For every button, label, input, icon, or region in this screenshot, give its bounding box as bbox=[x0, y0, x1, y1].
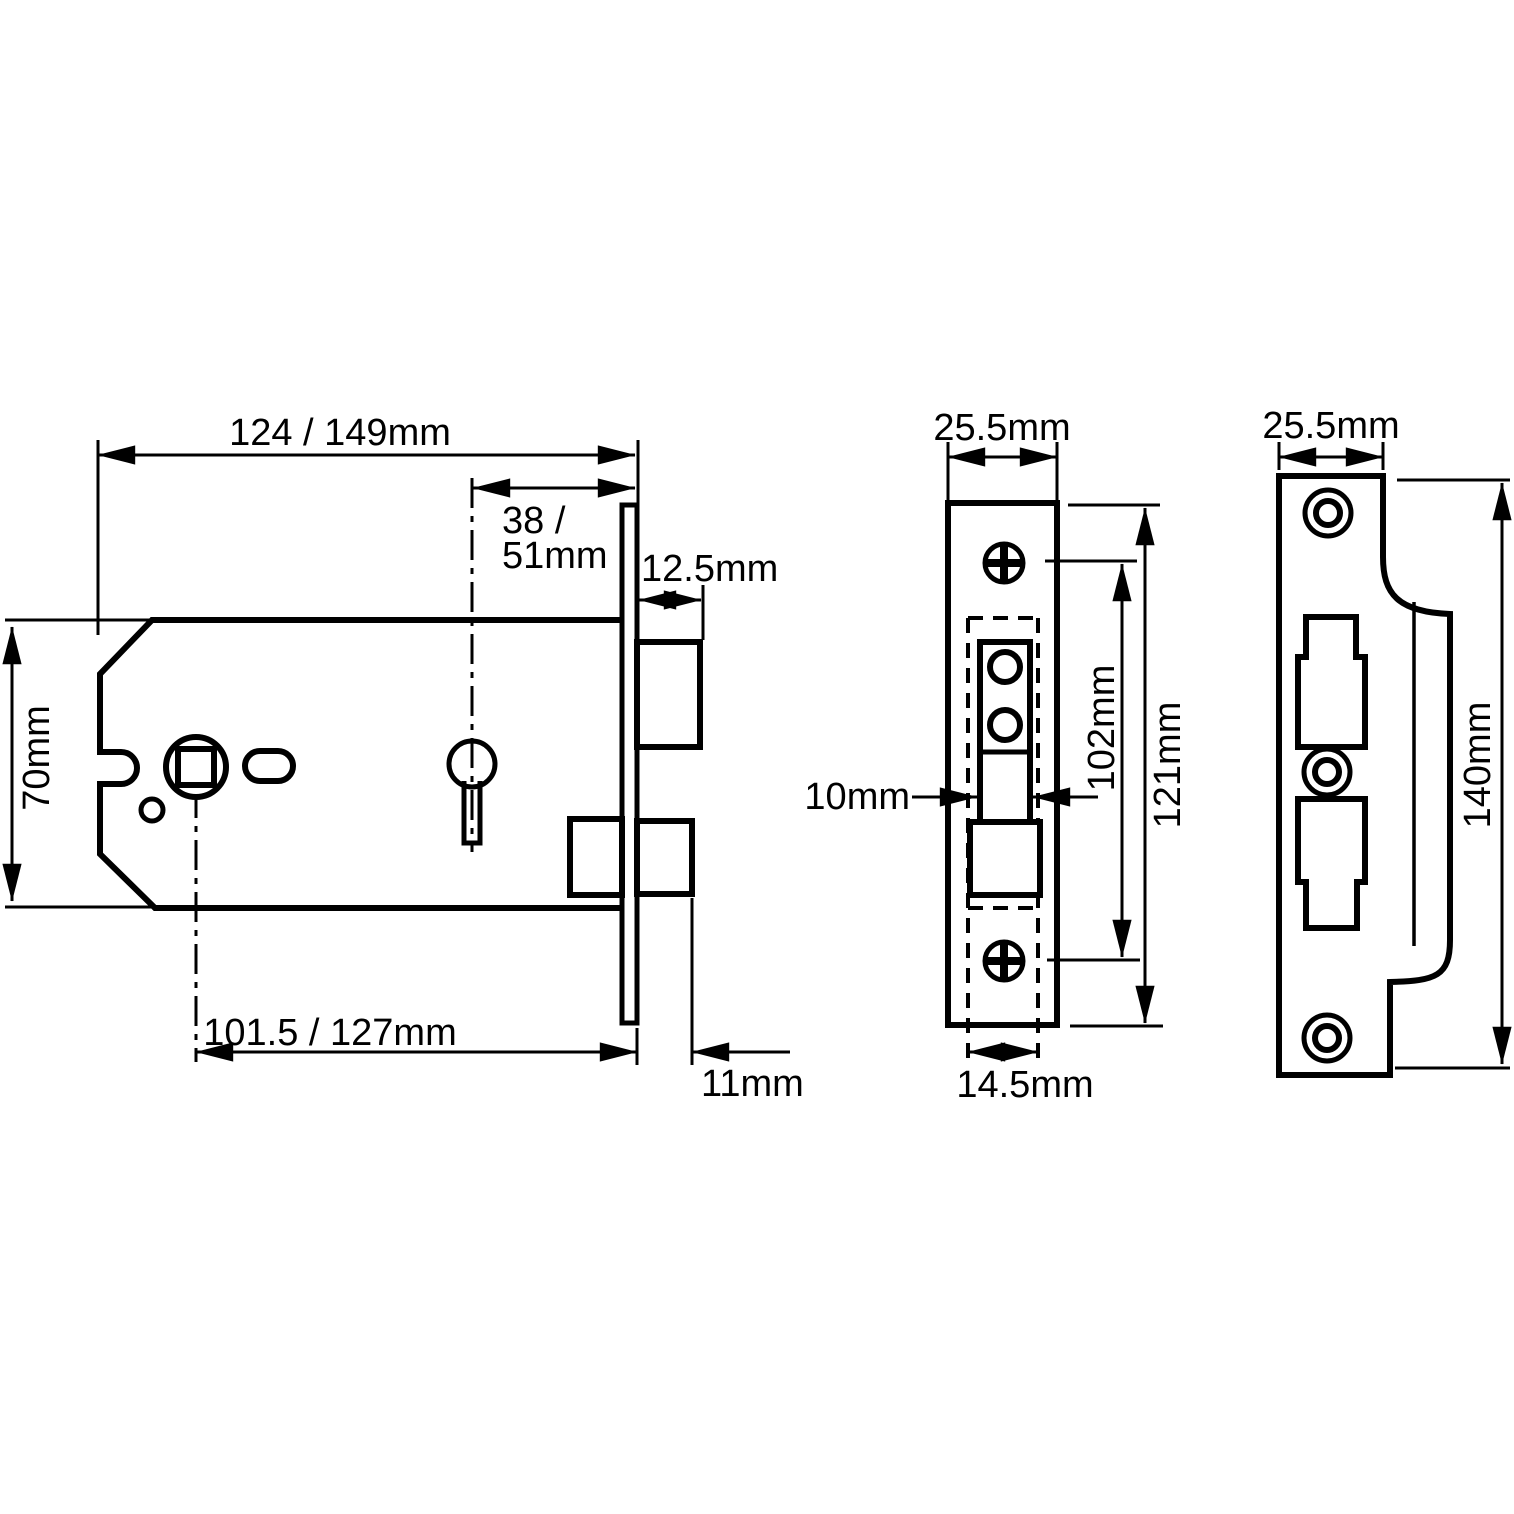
screw-hole-middle bbox=[1304, 749, 1350, 795]
diagram-svg: 124 / 149mm 38 / 51mm 12.5mm 70mm 101.5 … bbox=[0, 0, 1514, 1514]
screw-hole-bottom bbox=[1304, 1015, 1350, 1061]
case-depth-label: 14.5mm bbox=[956, 1064, 1093, 1106]
latch-bolt bbox=[637, 642, 700, 747]
deadbolt-projection bbox=[637, 821, 692, 894]
faceplate-width-label: 25.5mm bbox=[933, 407, 1070, 449]
latch-projection-label: 12.5mm bbox=[641, 548, 778, 590]
lock-case-side-view: 124 / 149mm 38 / 51mm 12.5mm 70mm 101.5 … bbox=[5, 412, 804, 1105]
strike-plate-view: 25.5mm 140mm bbox=[1262, 405, 1510, 1075]
screw-hole-top bbox=[1305, 490, 1351, 536]
case-length-label: 124 / 149mm bbox=[229, 412, 451, 454]
centres-extension-lines bbox=[637, 898, 692, 1065]
centres-label: 101.5 / 127mm bbox=[203, 1012, 456, 1054]
faceplate-edge bbox=[622, 505, 637, 1023]
deadbolt-inner bbox=[570, 819, 622, 895]
oval-slot bbox=[245, 751, 293, 781]
faceplate-front-view: 25.5mm 10mm 102mm 121mm 14.5mm bbox=[804, 407, 1189, 1106]
faceplate-width-extension-lines bbox=[948, 442, 1057, 500]
case-height-label: 70mm bbox=[16, 705, 58, 811]
latch-cutout bbox=[1298, 617, 1365, 747]
deadbolt-projection-label: 11mm bbox=[701, 1063, 804, 1105]
phillips-screw-bottom bbox=[985, 942, 1023, 980]
deadbolt-cutout bbox=[1298, 799, 1365, 928]
deadbolt-front bbox=[970, 822, 1040, 895]
technical-drawing: 124 / 149mm 38 / 51mm 12.5mm 70mm 101.5 … bbox=[0, 0, 1514, 1514]
countersink-circle bbox=[1304, 749, 1350, 795]
screw-centres-label: 102mm bbox=[1081, 665, 1123, 792]
countersink-circle bbox=[1305, 490, 1351, 536]
latch-pin-hole-upper bbox=[990, 652, 1020, 682]
plate-height-label: 140mm bbox=[1457, 702, 1499, 829]
phillips-screw-top bbox=[985, 544, 1023, 582]
small-fixing-hole bbox=[141, 799, 163, 821]
countersink-circle bbox=[1304, 1015, 1350, 1061]
backset-label-line2: 51mm bbox=[502, 535, 608, 577]
plate-width-label: 25.5mm bbox=[1262, 405, 1399, 447]
follower-width-label: 10mm bbox=[804, 776, 910, 818]
faceplate-height-label: 121mm bbox=[1147, 702, 1189, 829]
latch-pin-hole-lower bbox=[990, 710, 1020, 740]
